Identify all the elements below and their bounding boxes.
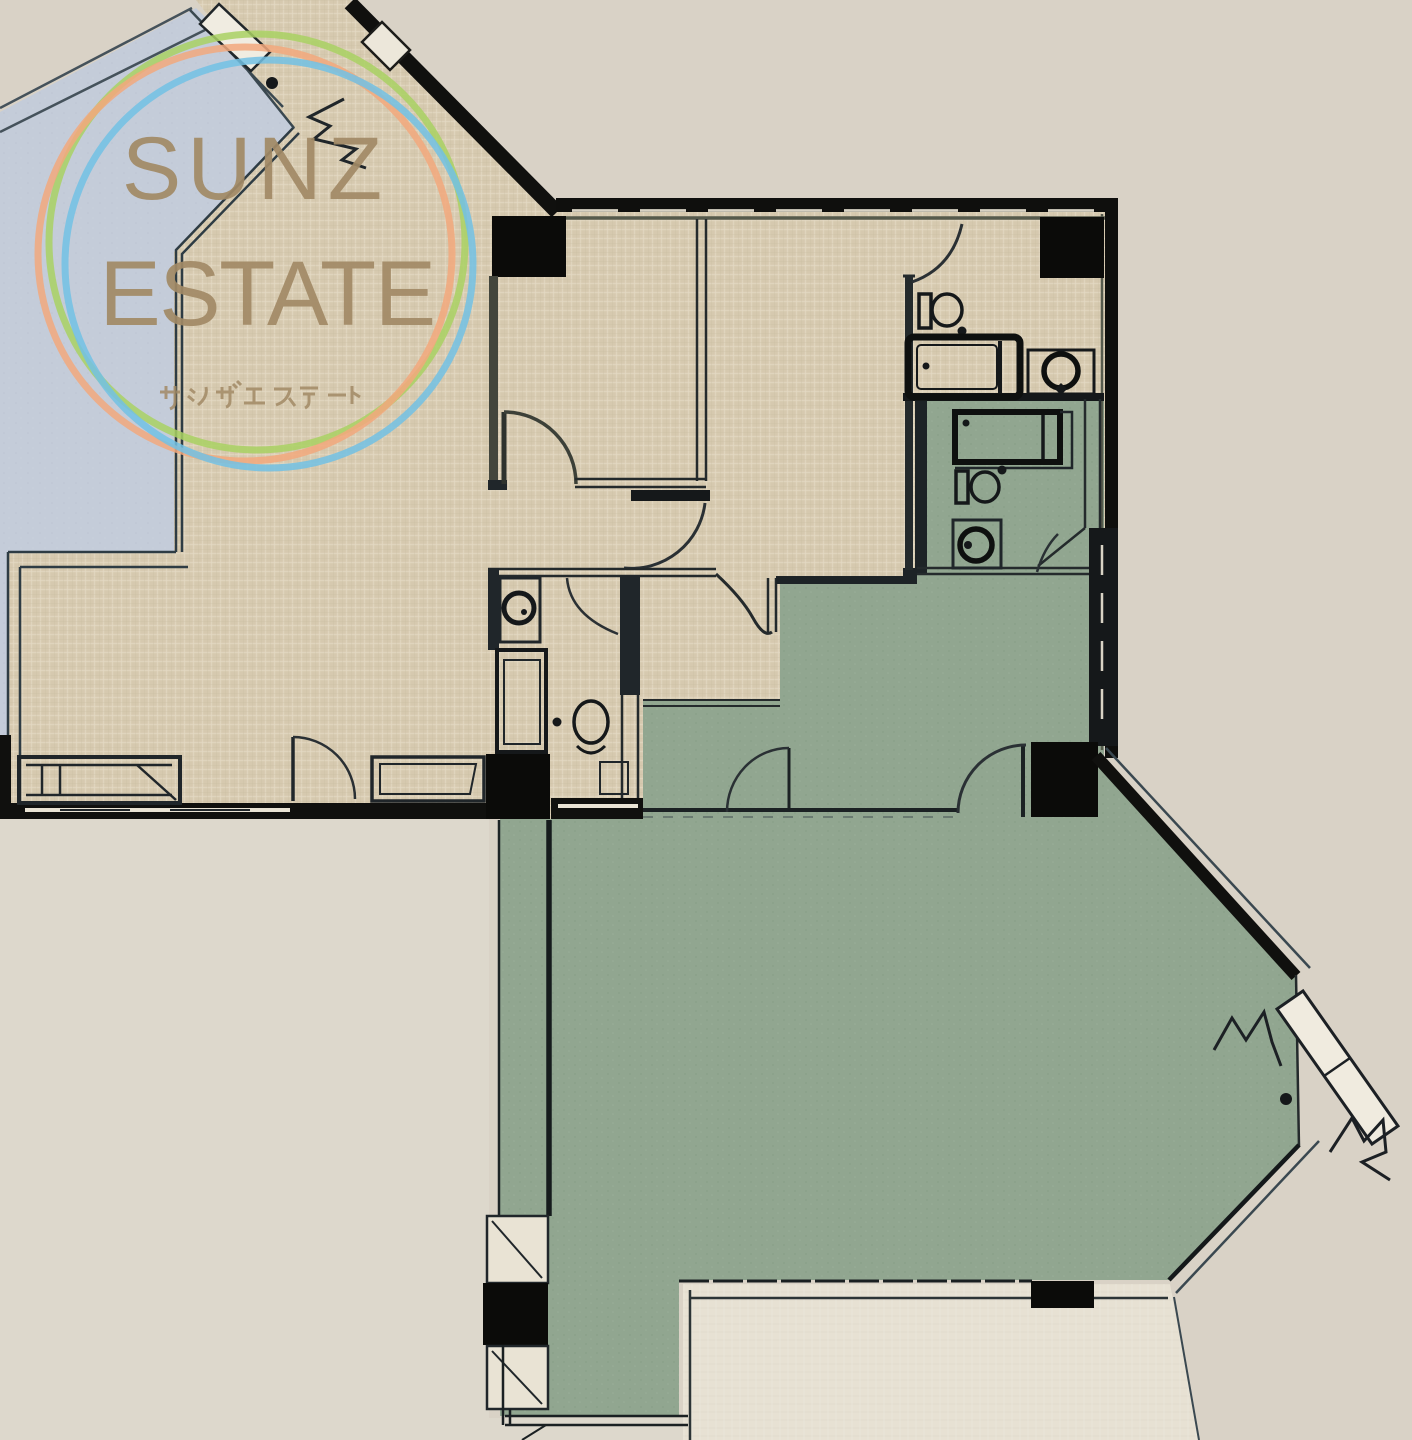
svg-text:ESTATE: ESTATE bbox=[99, 243, 434, 345]
svg-text:SUNZ: SUNZ bbox=[122, 118, 388, 218]
